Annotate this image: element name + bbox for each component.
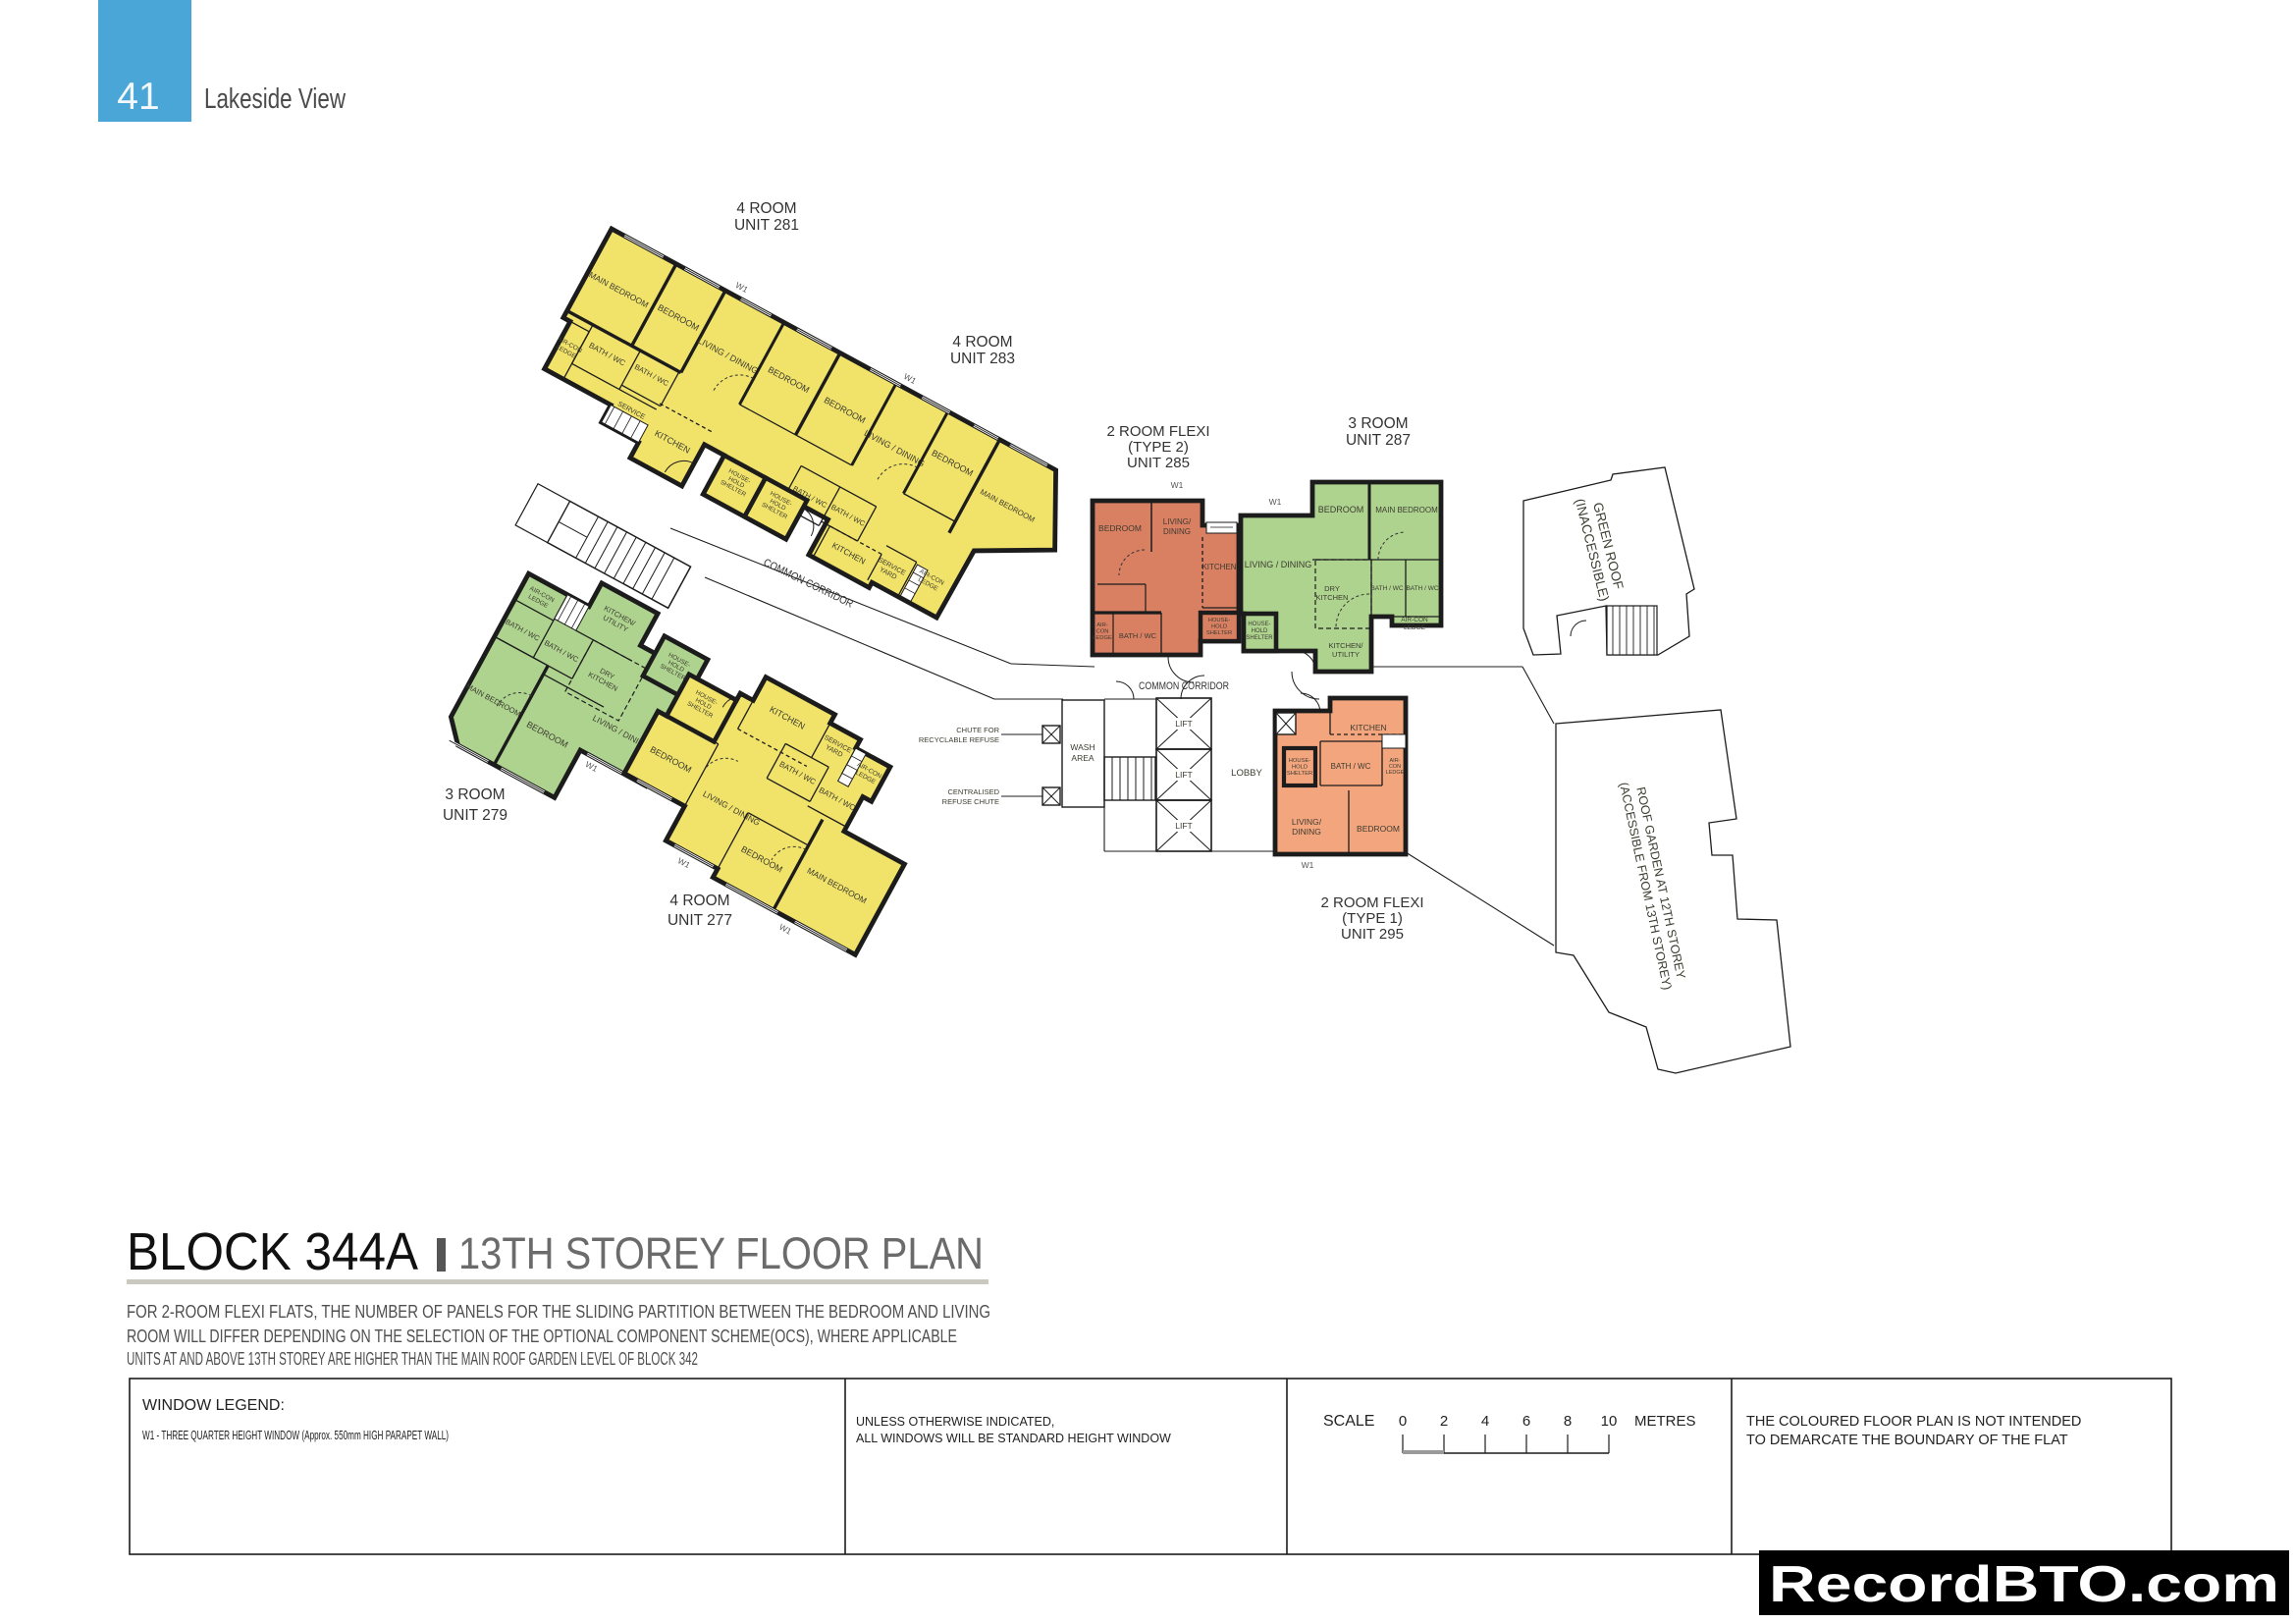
svg-text:SCALE: SCALE: [1323, 1413, 1374, 1430]
svg-text:4 ROOMUNIT 283: 4 ROOMUNIT 283: [950, 334, 1015, 367]
svg-text:BEDROOM: BEDROOM: [1318, 505, 1364, 514]
svg-text:LIVING/DINING: LIVING/DINING: [1163, 517, 1192, 536]
svg-text:BEDROOM: BEDROOM: [1098, 523, 1142, 533]
svg-text:W1 - THREE QUARTER HEIGHT WIND: W1 - THREE QUARTER HEIGHT WINDOW (Approx…: [142, 1429, 449, 1442]
svg-text:Lakeside View: Lakeside View: [204, 83, 347, 115]
svg-text:WINDOW LEGEND:: WINDOW LEGEND:: [142, 1397, 285, 1414]
svg-text:41: 41: [117, 76, 159, 118]
svg-text:LIVING / DINING: LIVING / DINING: [1245, 560, 1312, 569]
svg-text:W1: W1: [1302, 860, 1314, 870]
svg-text:AIR-CONLEDGE: AIR-CONLEDGE: [1401, 617, 1428, 631]
svg-text:LOBBY: LOBBY: [1231, 768, 1262, 779]
svg-text:BATH / WC: BATH / WC: [1119, 631, 1157, 640]
svg-text:4: 4: [1481, 1413, 1489, 1430]
svg-text:BATH / WC: BATH / WC: [1331, 762, 1371, 771]
svg-text:6: 6: [1522, 1413, 1530, 1430]
svg-text:METRES: METRES: [1634, 1413, 1696, 1430]
svg-text:BATH / WC: BATH / WC: [1406, 585, 1438, 592]
svg-text:LIFT: LIFT: [1175, 821, 1192, 831]
svg-text:WASHAREA: WASHAREA: [1070, 742, 1095, 763]
svg-text:ALL WINDOWS WILL BE STANDARD H: ALL WINDOWS WILL BE STANDARD HEIGHT WIND…: [856, 1432, 1171, 1445]
svg-text:TO DEMARCATE THE BOUNDARY OF T: TO DEMARCATE THE BOUNDARY OF THE FLAT: [1746, 1433, 2068, 1448]
svg-text:THE COLOURED FLOOR PLAN IS NOT: THE COLOURED FLOOR PLAN IS NOT INTENDED: [1746, 1414, 2081, 1430]
svg-text:10: 10: [1601, 1413, 1618, 1430]
svg-text:KITCHEN: KITCHEN: [1350, 723, 1386, 732]
svg-text:LIVING/DINING: LIVING/DINING: [1292, 817, 1322, 837]
svg-text:MAIN BEDROOM: MAIN BEDROOM: [1375, 506, 1438, 514]
svg-text:LIFT: LIFT: [1175, 770, 1192, 780]
svg-text:0: 0: [1399, 1413, 1407, 1430]
svg-text:ROOM WILL DIFFER DEPENDING ON: ROOM WILL DIFFER DEPENDING ON THE SELECT…: [127, 1326, 957, 1346]
svg-text:8: 8: [1564, 1413, 1572, 1430]
svg-text:2: 2: [1440, 1413, 1448, 1430]
svg-text:RecordBTO.com: RecordBTO.com: [1769, 1556, 2279, 1613]
svg-text:13TH STOREY FLOOR PLAN: 13TH STOREY FLOOR PLAN: [458, 1228, 984, 1278]
svg-text:KITCHEN: KITCHEN: [1201, 563, 1236, 571]
svg-text:3 ROOMUNIT 287: 3 ROOMUNIT 287: [1346, 415, 1411, 449]
svg-text:FOR 2-ROOM FLEXI FLATS, THE NU: FOR 2-ROOM FLEXI FLATS, THE NUMBER OF PA…: [127, 1302, 990, 1322]
svg-text:BLOCK 344A: BLOCK 344A: [127, 1222, 418, 1281]
svg-text:LIFT: LIFT: [1175, 719, 1192, 729]
svg-text:W1: W1: [1171, 480, 1184, 490]
svg-text:KITCHEN/UTILITY: KITCHEN/UTILITY: [1328, 641, 1363, 659]
svg-text:CENTRALISEDREFUSE CHUTE: CENTRALISEDREFUSE CHUTE: [942, 787, 1000, 806]
svg-text:4 ROOMUNIT 281: 4 ROOMUNIT 281: [734, 200, 799, 234]
svg-text:UNITS AT AND ABOVE 13TH STOREY: UNITS AT AND ABOVE 13TH STOREY ARE HIGHE…: [127, 1349, 698, 1369]
svg-text:W1: W1: [1269, 497, 1282, 507]
svg-text:UNLESS OTHERWISE INDICATED,: UNLESS OTHERWISE INDICATED,: [856, 1415, 1054, 1429]
svg-text:BATH / WC: BATH / WC: [1370, 585, 1403, 592]
svg-text:BEDROOM: BEDROOM: [1357, 824, 1400, 834]
svg-text:COMMON CORRIDOR: COMMON CORRIDOR: [1139, 680, 1229, 692]
